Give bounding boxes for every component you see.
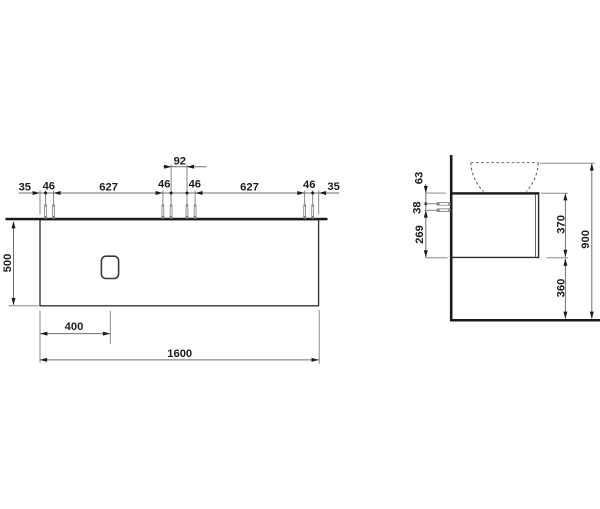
svg-text:46: 46 xyxy=(158,179,170,191)
svg-text:900: 900 xyxy=(580,230,592,249)
svg-text:46: 46 xyxy=(43,180,55,192)
svg-text:627: 627 xyxy=(240,181,259,193)
svg-text:92: 92 xyxy=(174,155,186,167)
svg-text:35: 35 xyxy=(19,181,31,193)
svg-text:370: 370 xyxy=(555,215,567,234)
svg-text:500: 500 xyxy=(2,254,14,273)
svg-text:46: 46 xyxy=(189,179,201,191)
svg-text:35: 35 xyxy=(327,181,339,193)
svg-text:360: 360 xyxy=(555,279,567,298)
svg-text:269: 269 xyxy=(414,225,426,244)
svg-text:46: 46 xyxy=(303,179,315,191)
svg-text:400: 400 xyxy=(65,321,84,333)
svg-text:63: 63 xyxy=(413,172,425,184)
svg-text:38: 38 xyxy=(411,201,423,213)
svg-text:627: 627 xyxy=(99,181,118,193)
svg-text:1600: 1600 xyxy=(167,348,192,360)
